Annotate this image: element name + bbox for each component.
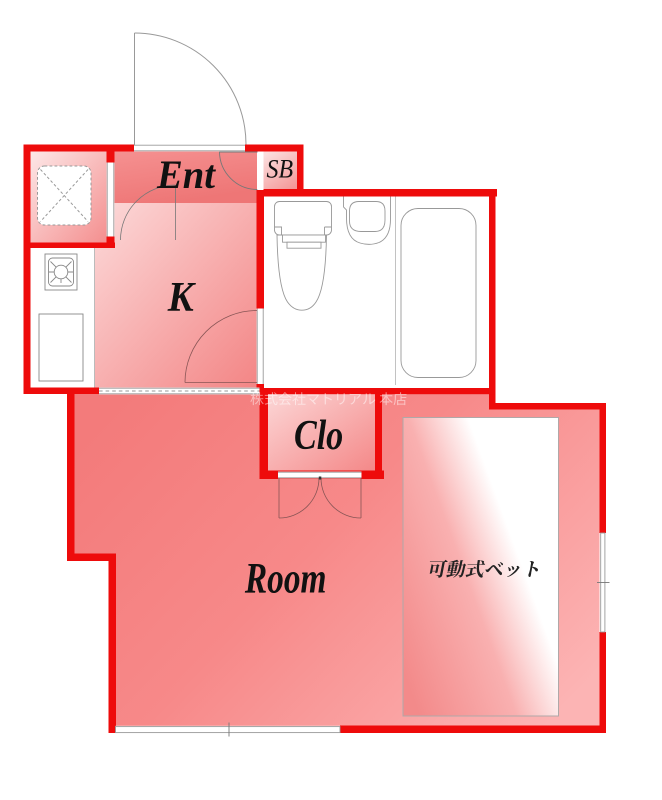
svg-text:Clo: Clo bbox=[294, 412, 343, 459]
svg-text:K: K bbox=[167, 274, 196, 321]
svg-text:Ent: Ent bbox=[156, 152, 217, 197]
svg-text:Room: Room bbox=[244, 555, 326, 603]
svg-text:SB: SB bbox=[267, 155, 294, 184]
